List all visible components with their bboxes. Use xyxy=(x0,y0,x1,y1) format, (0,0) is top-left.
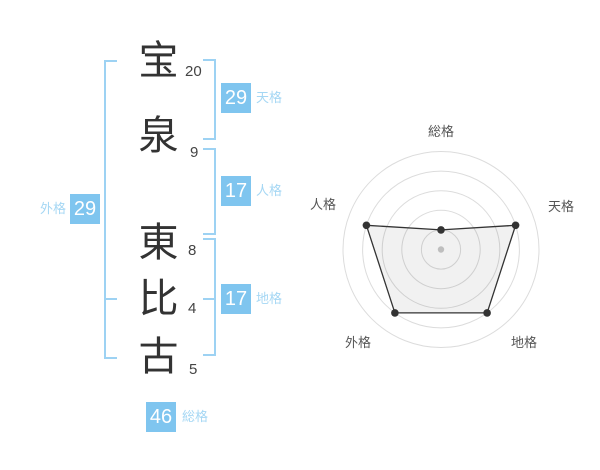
radar-chart: 総格天格地格外格人格 xyxy=(0,0,600,470)
radar-vertex-dot xyxy=(437,226,445,234)
radar-axis-label: 天格 xyxy=(548,199,574,214)
radar-axis-label: 外格 xyxy=(345,335,371,350)
radar-vertex-dot xyxy=(512,222,520,230)
radar-axis-label: 地格 xyxy=(511,335,537,350)
radar-axis-label: 人格 xyxy=(310,197,336,212)
radar-vertex-dot xyxy=(363,222,371,230)
radar-vertex-dot xyxy=(483,309,491,317)
radar-axis-label: 総格 xyxy=(428,124,454,139)
radar-data-polygon xyxy=(366,225,515,313)
radar-vertex-dot xyxy=(391,309,399,317)
name-analysis-chart: 宝20泉9東8比4古5 29 天格 17 人格 17 地格 外格 29 46 総… xyxy=(0,0,600,470)
